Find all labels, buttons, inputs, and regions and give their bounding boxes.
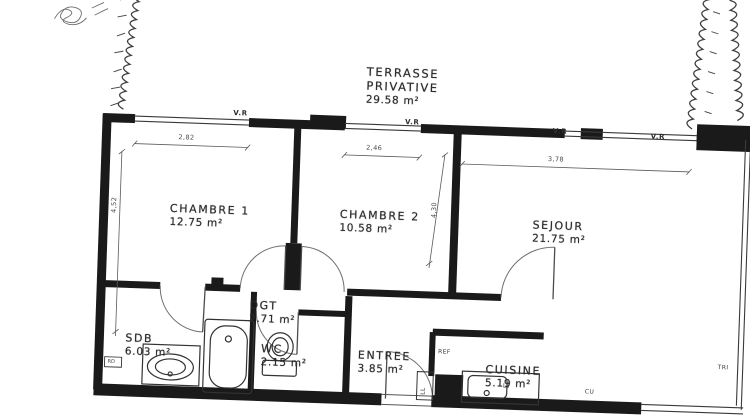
window-label-1: V.R — [233, 109, 248, 117]
wall-cuisine-top — [433, 332, 544, 336]
window-label-4: V.R — [651, 133, 666, 141]
room-label-cuisine: CUISINE 5.19 m² — [484, 350, 541, 405]
dim-chambre2-depth: 4,30 — [430, 202, 439, 218]
fridge-label: REF — [438, 348, 451, 355]
window-label-2: V.R — [405, 118, 420, 126]
sejour-area: 21.75 m² — [532, 233, 586, 247]
wall-top-c — [421, 129, 565, 134]
terrasse-area: 29.58 m² — [366, 94, 439, 109]
wall-entree-west — [345, 296, 349, 398]
handwriting-scribble — [54, 1, 108, 26]
radiator-label: RD — [107, 359, 115, 365]
wall-bottom — [94, 389, 642, 408]
chambre1-area: 12.75 m² — [169, 216, 249, 231]
wall-corner-ne — [696, 124, 750, 152]
bathtub — [203, 319, 255, 394]
window-sejour-east — [736, 140, 750, 410]
window-label-3: V.R — [553, 127, 568, 135]
wall-left — [98, 114, 108, 390]
wc-area: 2.15 m² — [260, 356, 306, 370]
cooker-label: CU — [585, 388, 595, 395]
windows — [125, 116, 750, 414]
room-label-wc: WC 2.15 m² — [260, 329, 308, 384]
room-label-chambre2: CHAMBRE 2 10.58 m² — [339, 195, 421, 251]
washer-label: LL — [420, 387, 427, 395]
room-label-sejour: SEJOUR 21.75 m² — [531, 206, 586, 261]
wall-pier-1 — [310, 115, 346, 129]
dishwasher-label: LV — [503, 383, 511, 390]
dim-sejour-width: 3,78 — [548, 155, 564, 164]
chambre2-area: 10.58 m² — [339, 222, 419, 237]
sdb-area: 6.03 m² — [125, 346, 171, 360]
room-label-terrasse: TERRASSE PRIVATIVE 29.58 m² — [365, 52, 440, 123]
plan-sheet: TERRASSE PRIVATIVE 29.58 m² CHAMBRE 1 12… — [0, 0, 750, 420]
wc-name: WC — [261, 342, 283, 356]
door-chambre1 — [240, 244, 286, 290]
sorting-label: TRI — [718, 364, 729, 371]
dim-chambre2-width: 2,46 — [366, 144, 382, 153]
terrasse-name: TERRASSE PRIVATIVE — [366, 64, 439, 94]
cuisine-name: CUISINE — [485, 363, 541, 378]
sdb-name: SDB — [125, 332, 153, 346]
wall-south-c — [347, 292, 501, 297]
door-chambre2 — [300, 246, 346, 292]
dim-chambre1-width: 2,82 — [178, 133, 194, 142]
room-label-entree: ENTREE 3.85 m² — [357, 336, 412, 391]
dgt-name: DGT — [249, 299, 278, 313]
wall-south-a — [101, 283, 160, 285]
wall-ch1-ch2 — [294, 124, 298, 243]
duct-chase — [434, 374, 463, 402]
dim-chambre1-depth: 4,52 — [110, 197, 119, 213]
entree-name: ENTREE — [358, 349, 411, 364]
hedge-right — [687, 0, 748, 131]
wall-pier-2 — [581, 128, 603, 140]
wall-ch2-sejour — [452, 130, 458, 293]
room-label-chambre1: CHAMBRE 1 12.75 m² — [169, 189, 251, 245]
dgt-area: 2.71 m² — [249, 313, 295, 327]
hedge-left — [110, 0, 141, 110]
wall-wc-top — [298, 312, 348, 314]
bottom-edge-continuation — [641, 404, 743, 414]
walls — [94, 103, 750, 412]
wall-entree-east — [431, 332, 433, 376]
wall-step — [211, 277, 223, 288]
room-label-sdb: SDB 6.03 m² — [124, 318, 172, 373]
cuisine-area: 5.19 m² — [485, 377, 541, 392]
wall-pier-dgt — [284, 243, 302, 291]
entree-area: 3.85 m² — [357, 363, 410, 377]
window-chambre1 — [135, 116, 249, 125]
floor-plan-scan: TERRASSE PRIVATIVE 29.58 m² CHAMBRE 1 12… — [0, 0, 750, 420]
sejour-name: SEJOUR — [532, 219, 584, 234]
